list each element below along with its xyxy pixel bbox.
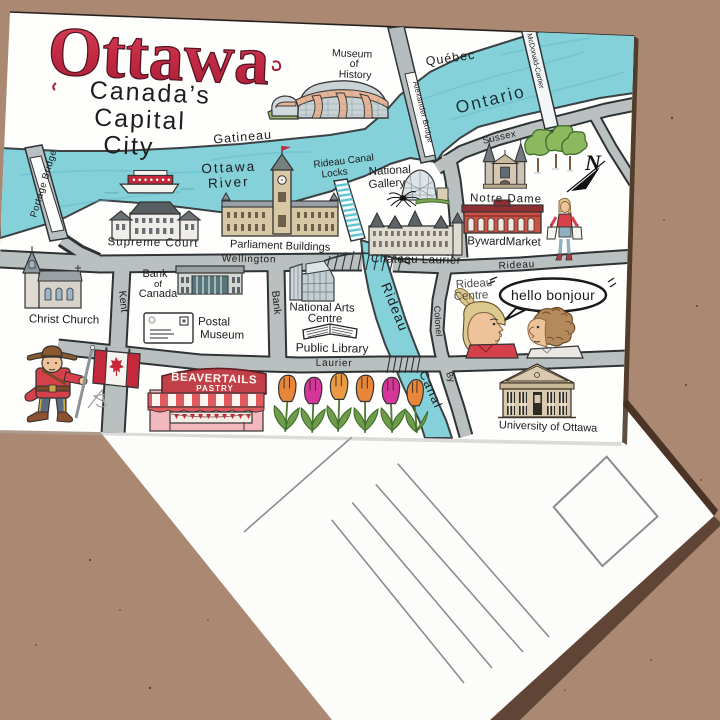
- svg-text:Museum: Museum: [200, 329, 244, 342]
- svg-text:Notre Dame: Notre Dame: [470, 192, 542, 205]
- svg-text:Rideau: Rideau: [498, 259, 535, 272]
- svg-text:Bank: Bank: [269, 290, 284, 316]
- svg-text:River: River: [208, 174, 250, 191]
- svg-text:Laurier: Laurier: [316, 358, 353, 370]
- svg-text:BywardMarket: BywardMarket: [467, 235, 541, 248]
- svg-text:PASTRY: PASTRY: [196, 384, 234, 393]
- svg-text:Centre: Centre: [454, 289, 489, 303]
- svg-text:Christ Church: Christ Church: [29, 313, 100, 326]
- svg-text:Kent: Kent: [116, 290, 130, 313]
- svg-text:Chateau Laurier: Chateau Laurier: [371, 253, 461, 267]
- svg-text:National: National: [368, 164, 411, 178]
- svg-text:Canada: Canada: [139, 288, 178, 300]
- svg-text:Gallery: Gallery: [368, 177, 405, 191]
- svg-text:hello bonjour: hello bonjour: [511, 287, 595, 303]
- svg-text:Wellington: Wellington: [222, 254, 277, 266]
- svg-text:Centre: Centre: [308, 313, 343, 326]
- svg-text:City: City: [103, 131, 155, 161]
- svg-text:Colonel: Colonel: [432, 305, 444, 336]
- svg-text:Postal: Postal: [198, 316, 230, 329]
- svg-text:Public Library: Public Library: [296, 340, 369, 355]
- svg-text:History: History: [339, 68, 373, 81]
- svg-text:Supreme Court: Supreme Court: [107, 236, 198, 250]
- svg-text:N: N: [584, 150, 602, 175]
